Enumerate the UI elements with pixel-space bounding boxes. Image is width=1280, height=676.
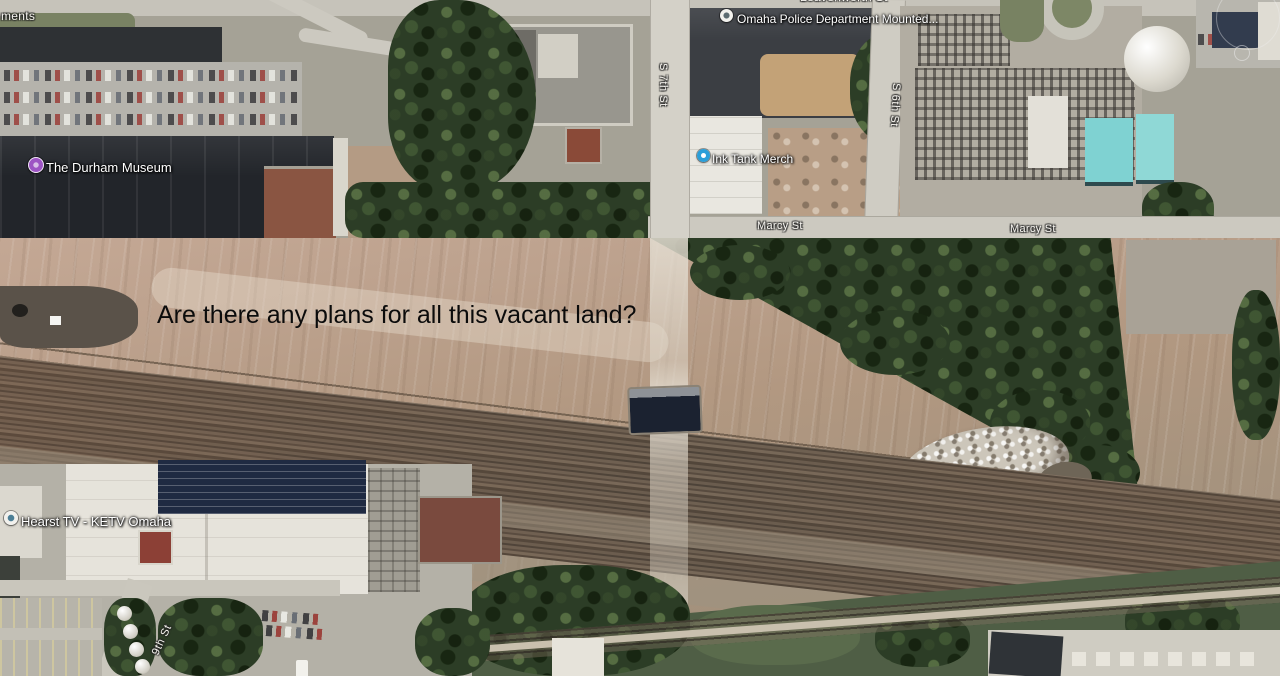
street-label-leavenworth: Leavenworth St — [800, 0, 888, 4]
teal-building — [1136, 114, 1174, 184]
partial-place-label[interactable]: ments — [1, 9, 35, 23]
red-shed — [565, 127, 602, 164]
tree-cluster — [1232, 290, 1280, 440]
small-building — [552, 638, 604, 676]
tree-cluster — [415, 608, 490, 676]
street-label-marcy-east: Marcy St — [1010, 223, 1056, 235]
poi-label-durham-museum[interactable]: The Durham Museum — [46, 160, 172, 175]
tree-cluster — [840, 310, 950, 375]
street-label-s6th: S 6th St — [888, 83, 902, 128]
building-roof — [538, 34, 578, 78]
parking-lot — [0, 598, 102, 676]
storage-dome — [135, 659, 150, 674]
shop-pin-icon[interactable] — [697, 149, 710, 162]
tree-cluster — [345, 182, 670, 238]
tree-cluster — [690, 245, 790, 300]
grass-patch — [1000, 0, 1044, 42]
horse-arena — [760, 54, 860, 116]
rooftop-units — [1072, 652, 1262, 666]
storage-dome — [117, 606, 132, 621]
north-urban-area — [0, 0, 1280, 238]
street-label-s7th: S 7th St — [657, 63, 669, 107]
rail-equipment — [12, 304, 28, 317]
storage-dome — [123, 624, 138, 639]
dark-ground-patch — [0, 286, 138, 348]
satellite-map[interactable]: ments Leavenworth St S 7th St S 6th St M… — [0, 0, 1280, 676]
tree-cluster — [158, 598, 263, 676]
tv-station-pin-icon[interactable] — [4, 511, 18, 525]
building-roof — [0, 27, 222, 63]
substation-building — [1028, 96, 1068, 168]
poi-label-ink-tank-merch[interactable]: Ink Tank Merch — [712, 152, 793, 166]
dark-roof — [989, 632, 1064, 676]
road — [0, 580, 340, 596]
overlay-question-text: Are there any plans for all this vacant … — [157, 301, 636, 330]
parked-cars — [4, 114, 298, 125]
police-pin-icon[interactable] — [720, 9, 733, 22]
building-ketv-dark-roof — [158, 460, 366, 514]
small-structure — [50, 316, 61, 325]
red-roof-building — [264, 166, 336, 238]
poi-label-hearst-ketv[interactable]: Hearst TV - KETV Omaha — [21, 514, 171, 529]
museum-pin-icon[interactable] — [28, 157, 44, 173]
seventh-street-road — [650, 0, 690, 238]
teal-building — [1085, 118, 1133, 186]
poi-label-omaha-police[interactable]: Omaha Police Department Mounted... — [737, 12, 938, 26]
red-roof-building — [418, 496, 502, 564]
parking-deck — [0, 62, 302, 138]
parked-cars — [4, 92, 298, 103]
marcy-street-road — [648, 216, 1280, 238]
tower-structure — [368, 468, 420, 592]
red-shed — [138, 530, 173, 565]
storage-tank — [1124, 26, 1190, 92]
white-van — [296, 660, 308, 676]
compass-pivot-icon[interactable] — [1234, 45, 1250, 61]
quonset-building — [627, 385, 703, 436]
parked-cars — [4, 70, 298, 81]
storage-dome — [129, 642, 144, 657]
street-label-marcy-west: Marcy St — [757, 220, 803, 232]
